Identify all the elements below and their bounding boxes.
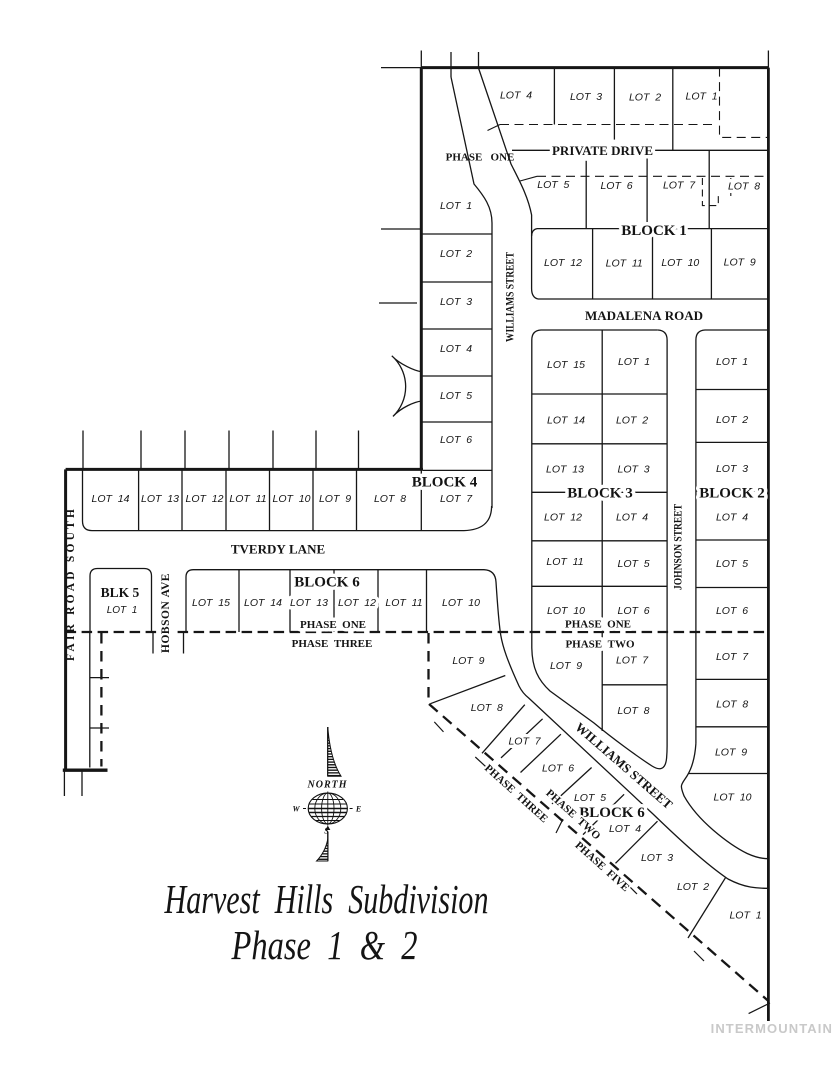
svg-text:LOT 1: LOT 1 <box>716 356 748 368</box>
svg-text:MADALENA ROAD: MADALENA ROAD <box>585 308 703 323</box>
svg-text:LOT 1: LOT 1 <box>729 910 761 922</box>
svg-text:LOT 6: LOT 6 <box>716 605 748 617</box>
svg-text:BLK 5: BLK 5 <box>101 585 140 600</box>
svg-text:LOT 6: LOT 6 <box>440 434 472 446</box>
svg-text:LOT 14: LOT 14 <box>92 493 130 505</box>
svg-text:LOT 7: LOT 7 <box>440 493 473 505</box>
svg-text:PHASE ONE: PHASE ONE <box>446 152 515 164</box>
svg-text:LOT 14: LOT 14 <box>547 415 585 427</box>
svg-text:LOT 12: LOT 12 <box>338 597 376 609</box>
svg-text:LOT 1: LOT 1 <box>107 605 138 616</box>
svg-text:LOT 5: LOT 5 <box>618 558 650 570</box>
svg-text:LOT 9: LOT 9 <box>724 256 756 268</box>
svg-text:NORTH: NORTH <box>307 780 348 791</box>
svg-text:LOT 14: LOT 14 <box>244 597 282 609</box>
svg-text:LOT 11: LOT 11 <box>606 257 643 269</box>
svg-text:LOT 15: LOT 15 <box>547 359 585 371</box>
svg-text:LOT 1: LOT 1 <box>686 91 718 103</box>
svg-text:Harvest Hills Subdivision: Harvest Hills Subdivision <box>164 876 489 922</box>
svg-text:LOT 9: LOT 9 <box>452 655 484 667</box>
svg-text:S: S <box>324 827 329 836</box>
svg-text:BLOCK 2: BLOCK 2 <box>699 486 764 502</box>
svg-text:PHASE ONE: PHASE ONE <box>300 619 366 631</box>
svg-text:LOT 9: LOT 9 <box>550 660 582 672</box>
svg-text:W: W <box>292 805 300 814</box>
svg-text:BLOCK 1: BLOCK 1 <box>621 223 686 239</box>
svg-text:LOT 7: LOT 7 <box>616 655 649 667</box>
svg-text:LOT 8: LOT 8 <box>617 705 649 717</box>
svg-text:PHASE ONE: PHASE ONE <box>565 619 631 631</box>
svg-text:LOT 10: LOT 10 <box>714 791 752 803</box>
svg-text:LOT 12: LOT 12 <box>186 493 224 505</box>
svg-text:LOT 7: LOT 7 <box>716 651 749 663</box>
svg-text:LOT 5: LOT 5 <box>440 390 472 402</box>
svg-text:LOT 12: LOT 12 <box>544 257 582 269</box>
svg-text:INTERMOUNTAIN: INTERMOUNTAIN <box>711 1021 833 1036</box>
svg-text:BLOCK 4: BLOCK 4 <box>412 475 478 491</box>
svg-text:WILLIAMS STREET: WILLIAMS STREET <box>505 252 517 342</box>
svg-text:LOT 8: LOT 8 <box>716 699 748 711</box>
svg-text:E: E <box>355 805 361 814</box>
svg-text:LOT 5: LOT 5 <box>716 558 748 570</box>
svg-text:LOT 2: LOT 2 <box>440 248 472 260</box>
svg-text:BLOCK 6: BLOCK 6 <box>294 575 360 591</box>
svg-text:LOT 13: LOT 13 <box>546 464 584 476</box>
svg-text:LOT 8: LOT 8 <box>728 180 760 192</box>
svg-text:LOT 2: LOT 2 <box>716 414 748 426</box>
svg-text:LOT 11: LOT 11 <box>229 493 266 505</box>
svg-text:LOT 5: LOT 5 <box>574 792 606 804</box>
svg-text:LOT 11: LOT 11 <box>385 597 422 609</box>
svg-text:LOT 2: LOT 2 <box>677 881 709 893</box>
svg-text:LOT 7: LOT 7 <box>508 736 541 748</box>
svg-text:LOT 4: LOT 4 <box>440 343 472 355</box>
svg-text:LOT 6: LOT 6 <box>600 180 632 192</box>
svg-text:LOT 10: LOT 10 <box>273 493 311 505</box>
svg-text:LOT 5: LOT 5 <box>537 179 569 191</box>
svg-text:LOT 6: LOT 6 <box>618 605 650 617</box>
svg-text:LOT 10: LOT 10 <box>547 605 585 617</box>
svg-text:HOBSON AVE: HOBSON AVE <box>160 573 172 653</box>
svg-text:LOT 7: LOT 7 <box>663 180 696 192</box>
svg-text:PHASE TWO: PHASE TWO <box>565 639 635 651</box>
svg-text:BLOCK 6: BLOCK 6 <box>579 805 645 821</box>
svg-text:LOT 6: LOT 6 <box>542 763 574 775</box>
svg-text:JOHNSON STREET: JOHNSON STREET <box>673 504 685 590</box>
svg-text:LOT 2: LOT 2 <box>616 415 648 427</box>
svg-text:LOT 4: LOT 4 <box>609 823 641 835</box>
svg-text:LOT 8: LOT 8 <box>471 702 503 714</box>
svg-text:LOT 8: LOT 8 <box>374 493 406 505</box>
svg-text:PHASE THREE: PHASE THREE <box>292 638 373 650</box>
svg-text:LOT 13: LOT 13 <box>290 597 328 609</box>
svg-text:BLOCK 3: BLOCK 3 <box>567 486 632 502</box>
svg-text:LOT 4: LOT 4 <box>616 512 648 524</box>
svg-text:LOT 4: LOT 4 <box>716 512 748 524</box>
svg-text:LOT 3: LOT 3 <box>570 91 602 103</box>
svg-text:LOT 12: LOT 12 <box>544 512 582 524</box>
svg-text:LOT 3: LOT 3 <box>716 463 748 475</box>
svg-text:LOT 11: LOT 11 <box>546 556 583 568</box>
svg-text:LOT 1: LOT 1 <box>440 200 472 212</box>
svg-text:LOT 3: LOT 3 <box>618 464 650 476</box>
svg-text:LOT 3: LOT 3 <box>440 296 472 308</box>
svg-text:LOT 3: LOT 3 <box>641 852 673 864</box>
svg-text:LOT 10: LOT 10 <box>661 257 699 269</box>
svg-text:LOT 9: LOT 9 <box>715 747 747 759</box>
svg-text:Phase 1 & 2: Phase 1 & 2 <box>231 922 418 968</box>
svg-text:LOT 10: LOT 10 <box>442 597 480 609</box>
svg-text:LOT 13: LOT 13 <box>141 493 179 505</box>
svg-text:TVERDY LANE: TVERDY LANE <box>231 542 325 557</box>
svg-text:LOT 15: LOT 15 <box>192 597 230 609</box>
svg-text:LOT 1: LOT 1 <box>618 356 650 368</box>
svg-text:LOT 4: LOT 4 <box>500 90 532 102</box>
svg-text:LOT 2: LOT 2 <box>629 92 661 104</box>
svg-text:LOT 9: LOT 9 <box>319 493 351 505</box>
svg-text:PRIVATE DRIVE: PRIVATE DRIVE <box>552 143 653 158</box>
